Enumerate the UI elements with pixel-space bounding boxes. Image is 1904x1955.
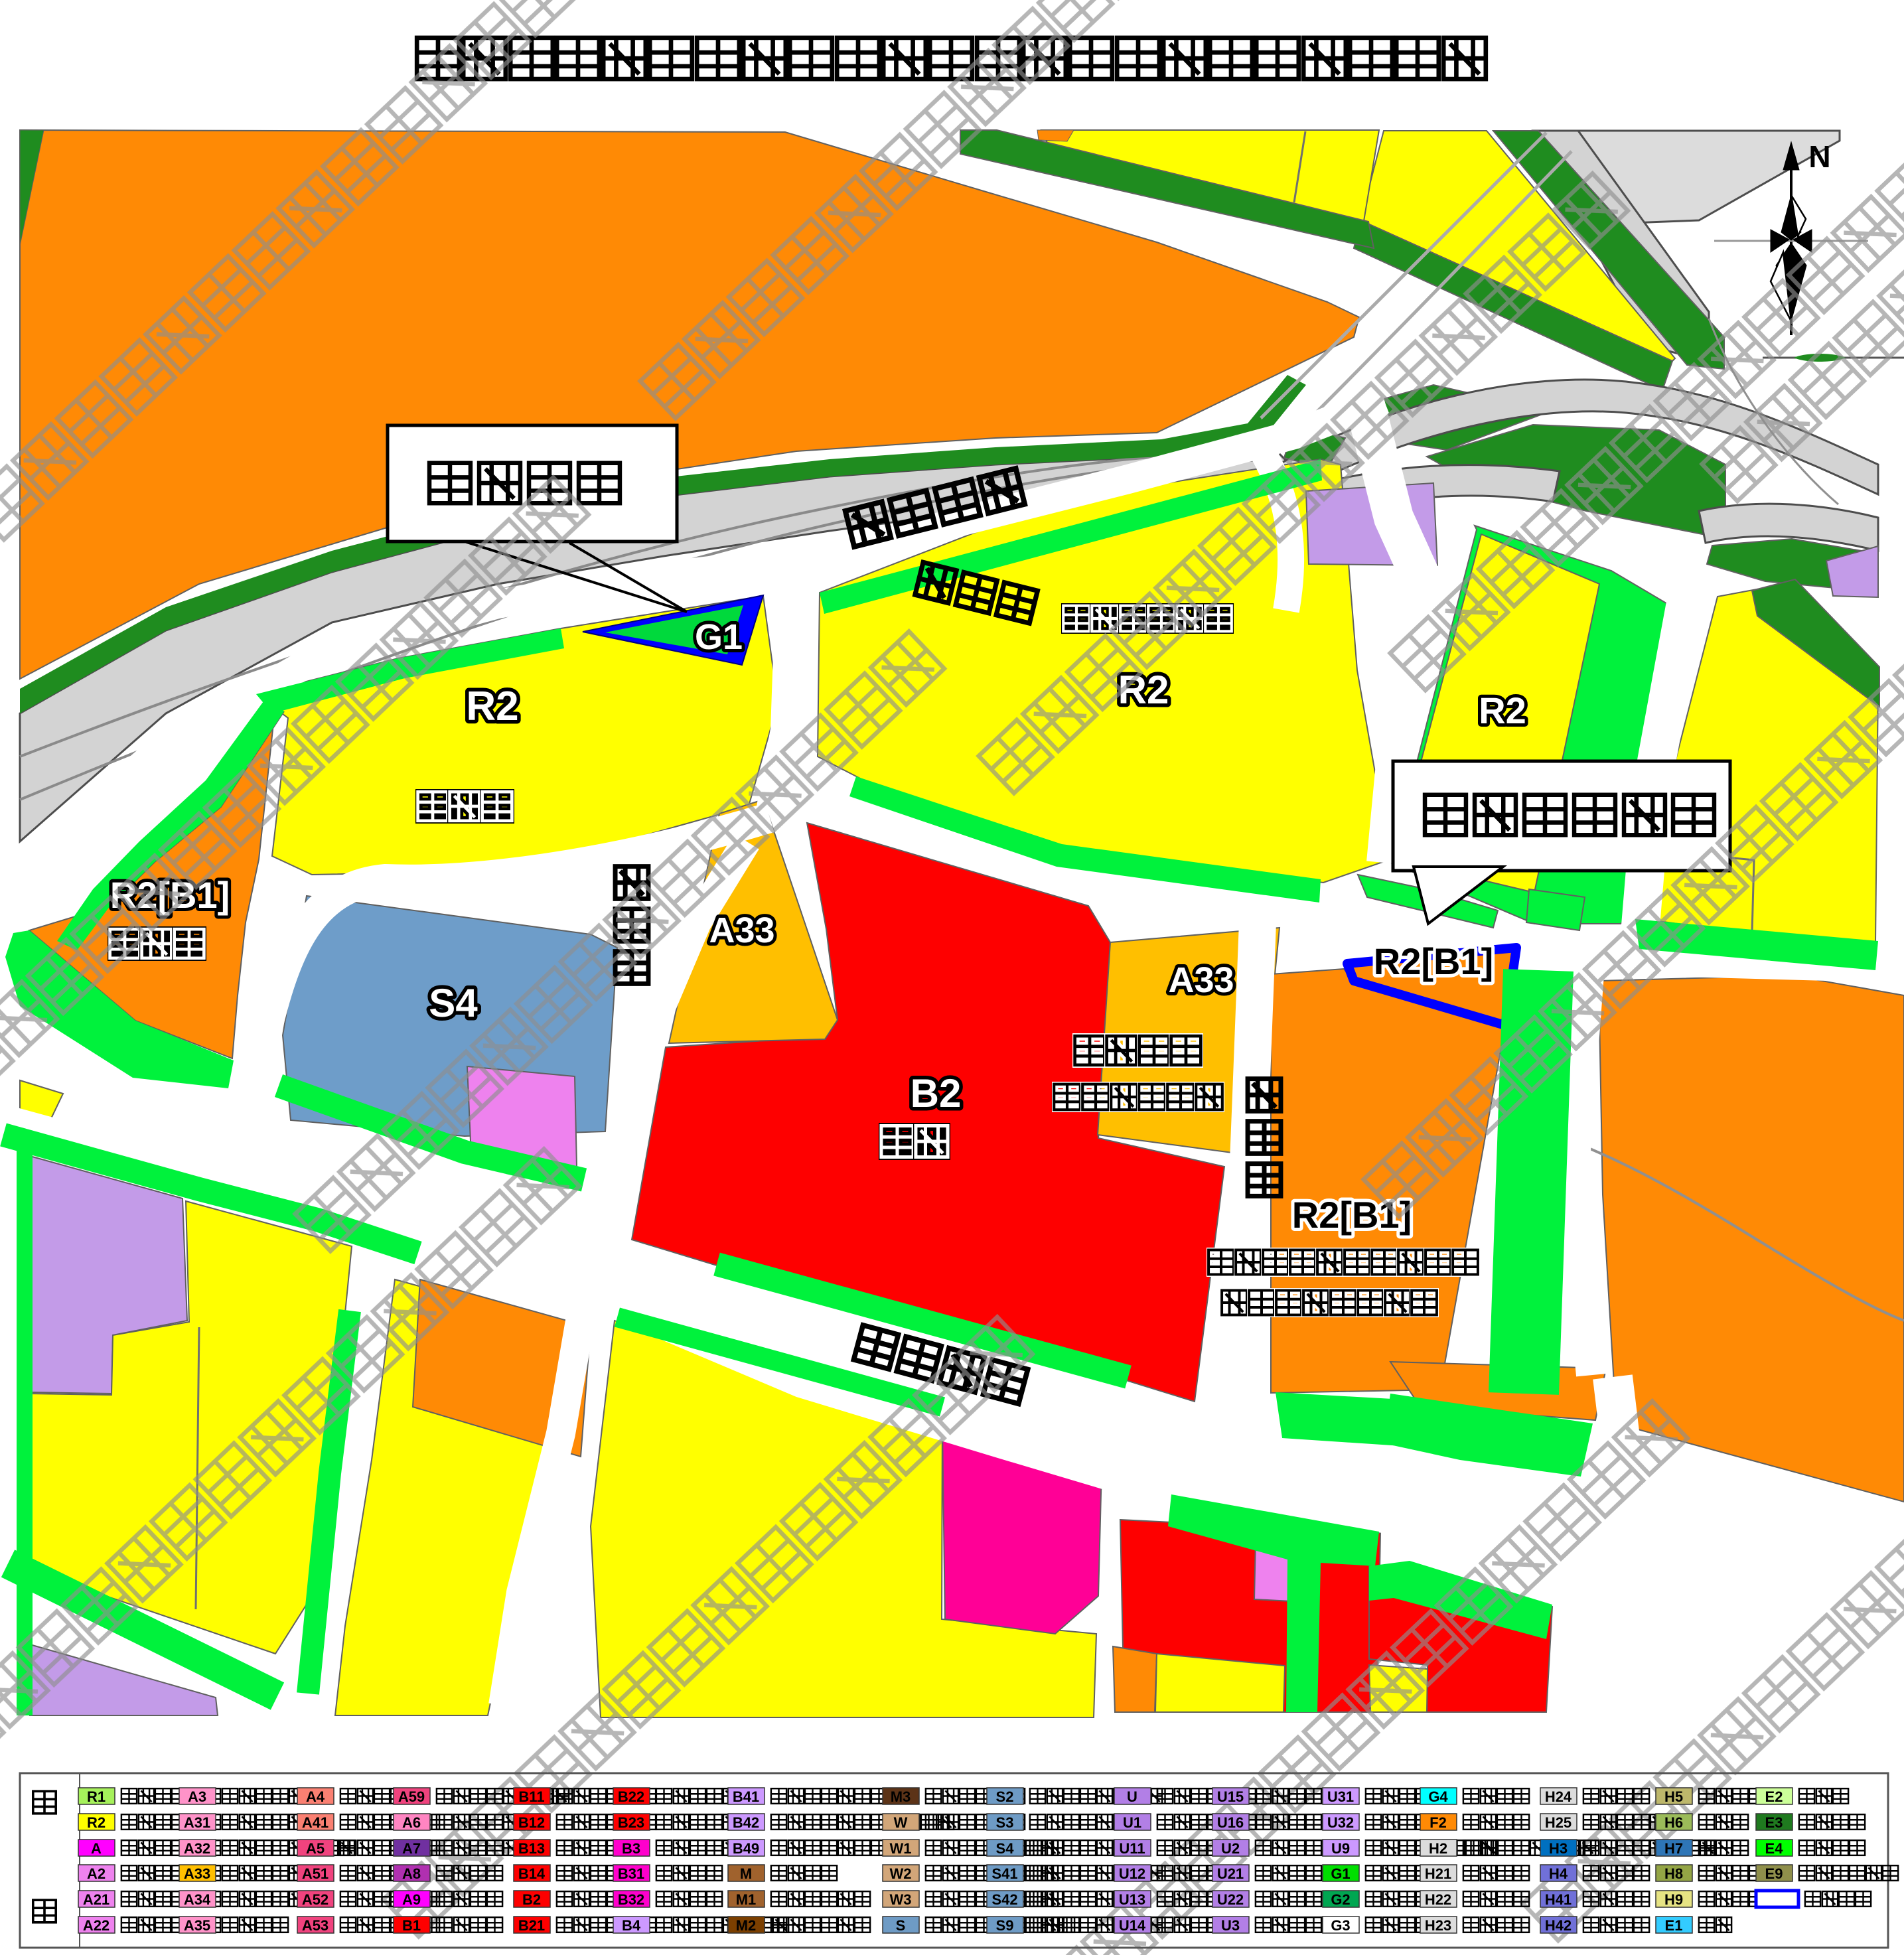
svg-text:A9: A9 bbox=[402, 1891, 421, 1908]
svg-text:A6: A6 bbox=[402, 1814, 421, 1831]
svg-text:A41: A41 bbox=[302, 1814, 329, 1831]
svg-text:S: S bbox=[896, 1917, 906, 1934]
svg-text:U15: U15 bbox=[1217, 1788, 1244, 1805]
svg-text:A4: A4 bbox=[306, 1788, 325, 1805]
svg-text:R1: R1 bbox=[87, 1788, 106, 1805]
svg-text:H6: H6 bbox=[1664, 1814, 1683, 1831]
svg-text:R2[B1]: R2[B1] bbox=[1374, 940, 1493, 982]
svg-text:G1: G1 bbox=[695, 617, 743, 657]
svg-text:B11: B11 bbox=[518, 1788, 544, 1805]
svg-text:U22: U22 bbox=[1217, 1891, 1244, 1908]
svg-text:B2: B2 bbox=[911, 1071, 962, 1116]
svg-text:A33: A33 bbox=[1168, 960, 1234, 1000]
svg-text:S4: S4 bbox=[429, 981, 478, 1025]
svg-text:A: A bbox=[91, 1840, 102, 1857]
svg-text:W2: W2 bbox=[890, 1865, 912, 1882]
svg-text:H25: H25 bbox=[1545, 1814, 1572, 1831]
svg-text:A2: A2 bbox=[87, 1865, 106, 1882]
svg-text:U32: U32 bbox=[1327, 1814, 1354, 1831]
svg-text:B49: B49 bbox=[733, 1840, 759, 1857]
svg-text:H9: H9 bbox=[1664, 1891, 1683, 1908]
svg-text:S42: S42 bbox=[991, 1891, 1017, 1908]
svg-text:A52: A52 bbox=[302, 1891, 329, 1908]
svg-text:N: N bbox=[1808, 139, 1830, 174]
svg-text:H24: H24 bbox=[1545, 1788, 1572, 1805]
svg-text:A34: A34 bbox=[184, 1891, 211, 1908]
svg-text:H3: H3 bbox=[1549, 1840, 1568, 1857]
svg-text:R2: R2 bbox=[466, 684, 518, 729]
svg-text:B22: B22 bbox=[618, 1788, 644, 1805]
svg-text:U12: U12 bbox=[1119, 1865, 1145, 1882]
svg-text:H23: H23 bbox=[1425, 1917, 1451, 1934]
svg-text:E9: E9 bbox=[1765, 1865, 1783, 1882]
svg-text:F2: F2 bbox=[1429, 1814, 1447, 1831]
svg-text:A31: A31 bbox=[184, 1814, 210, 1831]
svg-text:H21: H21 bbox=[1425, 1865, 1451, 1882]
svg-text:A22: A22 bbox=[83, 1917, 110, 1934]
svg-text:A3: A3 bbox=[188, 1788, 206, 1805]
svg-text:E4: E4 bbox=[1765, 1840, 1784, 1857]
svg-text:W3: W3 bbox=[890, 1891, 912, 1908]
svg-text:G3: G3 bbox=[1331, 1917, 1350, 1934]
svg-text:U13: U13 bbox=[1119, 1891, 1145, 1908]
svg-text:M2: M2 bbox=[736, 1917, 757, 1934]
svg-text:A33: A33 bbox=[184, 1865, 210, 1882]
svg-text:B12: B12 bbox=[518, 1814, 545, 1831]
svg-text:U14: U14 bbox=[1119, 1917, 1146, 1934]
svg-text:U21: U21 bbox=[1217, 1865, 1244, 1882]
svg-text:H42: H42 bbox=[1545, 1917, 1572, 1934]
svg-text:U: U bbox=[1127, 1788, 1137, 1805]
svg-text:B23: B23 bbox=[618, 1814, 644, 1831]
svg-text:H5: H5 bbox=[1664, 1788, 1683, 1805]
svg-text:H4: H4 bbox=[1549, 1865, 1568, 1882]
svg-text:U16: U16 bbox=[1217, 1814, 1244, 1831]
svg-text:M1: M1 bbox=[736, 1891, 757, 1908]
svg-text:B4: B4 bbox=[622, 1917, 641, 1934]
svg-text:H41: H41 bbox=[1545, 1891, 1572, 1908]
svg-text:S9: S9 bbox=[996, 1917, 1014, 1934]
svg-text:B2: B2 bbox=[522, 1891, 541, 1908]
svg-text:G1: G1 bbox=[1331, 1865, 1350, 1882]
svg-text:U2: U2 bbox=[1221, 1840, 1240, 1857]
svg-text:E1: E1 bbox=[1665, 1917, 1683, 1934]
svg-text:G4: G4 bbox=[1428, 1788, 1448, 1805]
svg-text:S41: S41 bbox=[991, 1865, 1017, 1882]
svg-text:A53: A53 bbox=[302, 1917, 329, 1934]
svg-text:A51: A51 bbox=[302, 1865, 329, 1882]
svg-text:W: W bbox=[894, 1814, 908, 1831]
svg-text:B14: B14 bbox=[518, 1865, 546, 1882]
svg-text:U9: U9 bbox=[1331, 1840, 1350, 1857]
svg-text:E3: E3 bbox=[1765, 1814, 1783, 1831]
svg-text:A33: A33 bbox=[709, 910, 774, 950]
svg-text:G2: G2 bbox=[1331, 1891, 1350, 1908]
svg-text:H8: H8 bbox=[1664, 1865, 1683, 1882]
svg-text:R2: R2 bbox=[1479, 689, 1526, 731]
svg-text:B31: B31 bbox=[618, 1865, 644, 1882]
svg-text:A59: A59 bbox=[398, 1788, 425, 1805]
svg-text:B13: B13 bbox=[518, 1840, 545, 1857]
svg-text:U31: U31 bbox=[1327, 1788, 1354, 1805]
svg-text:B32: B32 bbox=[618, 1891, 644, 1908]
svg-text:A8: A8 bbox=[402, 1865, 421, 1882]
svg-text:H2: H2 bbox=[1429, 1840, 1447, 1857]
svg-text:S4: S4 bbox=[996, 1840, 1015, 1857]
svg-text:A32: A32 bbox=[184, 1840, 210, 1857]
svg-text:U11: U11 bbox=[1119, 1840, 1145, 1857]
svg-text:A7: A7 bbox=[402, 1840, 421, 1857]
svg-text:B42: B42 bbox=[733, 1814, 759, 1831]
svg-text:H7: H7 bbox=[1664, 1840, 1683, 1857]
svg-text:B3: B3 bbox=[622, 1840, 640, 1857]
svg-text:B21: B21 bbox=[518, 1917, 545, 1934]
svg-text:H22: H22 bbox=[1425, 1891, 1451, 1908]
svg-text:B1: B1 bbox=[402, 1917, 421, 1934]
svg-text:S2: S2 bbox=[996, 1788, 1014, 1805]
svg-text:W1: W1 bbox=[890, 1840, 912, 1857]
svg-text:R2: R2 bbox=[87, 1814, 106, 1831]
svg-text:U1: U1 bbox=[1123, 1814, 1141, 1831]
svg-text:A35: A35 bbox=[184, 1917, 210, 1934]
svg-text:M: M bbox=[740, 1865, 752, 1882]
svg-text:A21: A21 bbox=[83, 1891, 110, 1908]
svg-text:U3: U3 bbox=[1221, 1917, 1240, 1934]
svg-text:E2: E2 bbox=[1765, 1788, 1783, 1805]
svg-text:S3: S3 bbox=[996, 1814, 1014, 1831]
svg-text:A5: A5 bbox=[306, 1840, 325, 1857]
svg-text:B41: B41 bbox=[733, 1788, 759, 1805]
svg-text:M3: M3 bbox=[891, 1788, 911, 1805]
